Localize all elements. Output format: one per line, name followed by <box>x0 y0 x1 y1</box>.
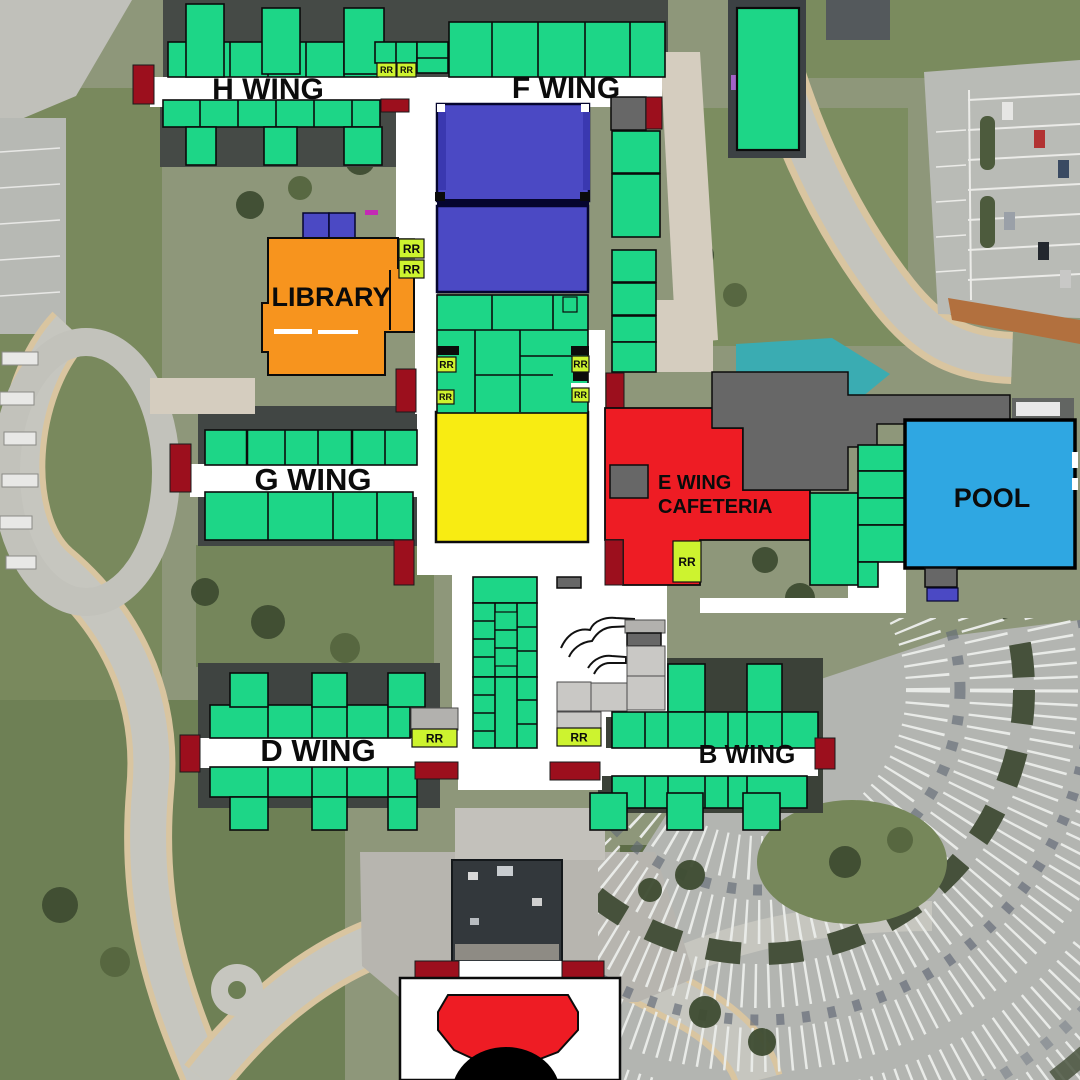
label-e-wing: E WING <box>658 472 731 494</box>
kitchen-room <box>557 682 591 711</box>
d-wing-room <box>388 797 417 830</box>
f-wing-top-row <box>449 22 665 77</box>
tree <box>748 1028 776 1056</box>
tree <box>689 996 721 1028</box>
gym-corner <box>581 104 589 112</box>
tree <box>330 633 360 663</box>
gym-upper <box>437 104 589 201</box>
gym-side-strip <box>439 112 446 190</box>
pool-south-gray <box>925 568 957 587</box>
hall-library-north <box>396 106 437 238</box>
restroom-label: RR <box>380 65 393 75</box>
car <box>1058 160 1069 178</box>
wall-bar <box>437 346 459 355</box>
d-wing-room <box>388 673 425 707</box>
restroom-label: RR <box>400 65 413 75</box>
tree <box>100 947 130 977</box>
pool-door-gap <box>1072 452 1078 468</box>
center-cluster <box>437 295 588 413</box>
tree <box>191 578 219 606</box>
kitchen-dark-row <box>627 633 661 646</box>
f-col-room <box>612 316 656 342</box>
entrance <box>133 65 154 104</box>
bus <box>6 556 36 569</box>
court-block-top <box>473 577 537 603</box>
gym-corner <box>580 192 590 201</box>
restroom-label: RR <box>570 730 588 744</box>
entrance <box>550 762 600 780</box>
car <box>1004 212 1015 230</box>
car <box>1060 270 1071 288</box>
tree <box>675 860 705 890</box>
bus <box>2 352 38 365</box>
h-wing-room <box>262 8 300 74</box>
label-b-wing: B WING <box>699 739 796 769</box>
rooftop-unit <box>497 866 513 876</box>
h-wing-room <box>186 4 224 77</box>
f-col-room <box>612 174 660 237</box>
entrance <box>180 735 200 772</box>
restroom-label: RR <box>403 262 421 276</box>
tree <box>42 887 78 923</box>
d-wing-room <box>312 673 347 707</box>
greenhouse-building <box>737 8 799 150</box>
b-wing-room <box>667 793 703 830</box>
pool-south-blue <box>927 588 958 601</box>
f-col-room <box>612 131 660 173</box>
d-wing-room <box>312 797 347 830</box>
b-wing-room <box>590 793 627 830</box>
h-wing-room <box>264 127 297 165</box>
library-door-gap <box>318 330 358 334</box>
g-wing-lower-row <box>205 492 413 540</box>
gym-corner <box>435 192 445 201</box>
d-wing-room <box>230 797 268 830</box>
truck <box>1016 402 1060 416</box>
tree <box>288 176 312 200</box>
bus <box>4 432 36 445</box>
bus <box>2 474 38 487</box>
restroom-label: RR <box>439 392 452 402</box>
tree <box>638 878 662 902</box>
car <box>1002 102 1013 120</box>
hall-cluster-west <box>425 330 437 414</box>
cluster-notch <box>563 297 577 312</box>
kitchen-room <box>557 712 601 729</box>
campus-map: RRRRRRRRRRRRRRRRRRRRRRH WINGF WINGLIBRAR… <box>0 0 1080 1080</box>
tree <box>887 827 913 853</box>
d-wing-room <box>230 673 268 707</box>
e-wing-room <box>858 525 905 562</box>
kitchen-room <box>591 683 627 711</box>
label-h-wing: H WING <box>212 73 324 106</box>
bus <box>0 392 34 405</box>
entrance-tower-trim <box>455 944 559 960</box>
e-wing-room <box>858 562 878 587</box>
entrance <box>394 540 414 585</box>
entrance <box>381 99 409 112</box>
library-annex <box>303 213 329 238</box>
entrance <box>170 444 191 492</box>
restroom-label: RR <box>573 360 588 371</box>
entrance <box>415 762 458 779</box>
restroom-label: RR <box>403 242 421 256</box>
tree <box>723 283 747 307</box>
entrance <box>605 540 623 585</box>
walkway <box>455 808 605 860</box>
entrance <box>646 97 662 129</box>
car <box>1038 242 1049 260</box>
magenta-marker <box>365 210 378 215</box>
hall-commons-west <box>417 412 436 544</box>
f-col-room <box>612 283 656 315</box>
rooftop-unit <box>468 872 478 880</box>
label-d-wing: D WING <box>260 733 375 768</box>
restroom-label: RR <box>574 390 587 400</box>
e-wing-room-block <box>810 493 858 585</box>
tree <box>752 547 778 573</box>
building-top-right <box>826 0 890 40</box>
bus <box>0 516 32 529</box>
library-door-gap <box>274 329 312 334</box>
cafeteria-gray-room <box>610 465 648 498</box>
hall-pool-walk <box>700 598 906 613</box>
hall-cluster-east <box>588 330 605 414</box>
rooftop-unit <box>532 898 542 906</box>
e-wing-room <box>858 445 905 471</box>
wall-bar <box>573 372 588 381</box>
walkway <box>150 378 255 414</box>
kitchen-room <box>627 646 665 710</box>
b-wing-room <box>747 664 782 712</box>
entrance <box>815 738 835 769</box>
d-wing-gray <box>411 708 458 730</box>
court-inner <box>495 612 517 666</box>
tree <box>829 846 861 878</box>
tree <box>251 605 285 639</box>
label-library: LIBRARY <box>272 282 391 312</box>
restroom-label: RR <box>439 360 454 371</box>
gym-side-strip <box>583 112 590 190</box>
car <box>1034 130 1045 148</box>
label-pool: POOL <box>954 483 1031 513</box>
commons-building <box>436 412 588 542</box>
wall-gap <box>571 383 589 388</box>
b-wing-room <box>668 664 705 712</box>
kitchen-gray-row <box>625 620 665 633</box>
restroom-label: RR <box>678 555 696 569</box>
label-cafeteria: CAFETERIA <box>658 496 772 518</box>
label-f-wing: F WING <box>512 72 620 105</box>
gym-corner <box>437 104 445 112</box>
e-wing-room <box>858 471 905 498</box>
gym-divider <box>437 199 589 207</box>
parking-island <box>980 196 995 248</box>
parking-island <box>980 116 995 170</box>
library-annex <box>329 213 355 238</box>
cul-de-sac-island <box>228 981 246 999</box>
tree <box>236 191 264 219</box>
h-wing-room <box>186 127 216 165</box>
restroom-label: RR <box>426 731 444 745</box>
campus-map-svg: RRRRRRRRRRRRRRRRRRRRRRH WINGF WINGLIBRAR… <box>0 0 1080 1080</box>
e-wing-room <box>858 498 905 525</box>
d-wing-lower-row <box>210 767 417 797</box>
rooftop-unit <box>470 918 479 925</box>
label-g-wing: G WING <box>254 462 371 497</box>
wall-bar <box>571 346 589 355</box>
f-col-room <box>612 342 656 372</box>
entrance <box>396 369 416 412</box>
b-wing-room <box>743 793 780 830</box>
kitchen-gray-unit <box>557 577 581 588</box>
h-wing-room <box>344 127 382 165</box>
gym-lower <box>437 206 588 292</box>
f-col-room <box>612 250 656 282</box>
pool-door-gap <box>1072 478 1078 490</box>
